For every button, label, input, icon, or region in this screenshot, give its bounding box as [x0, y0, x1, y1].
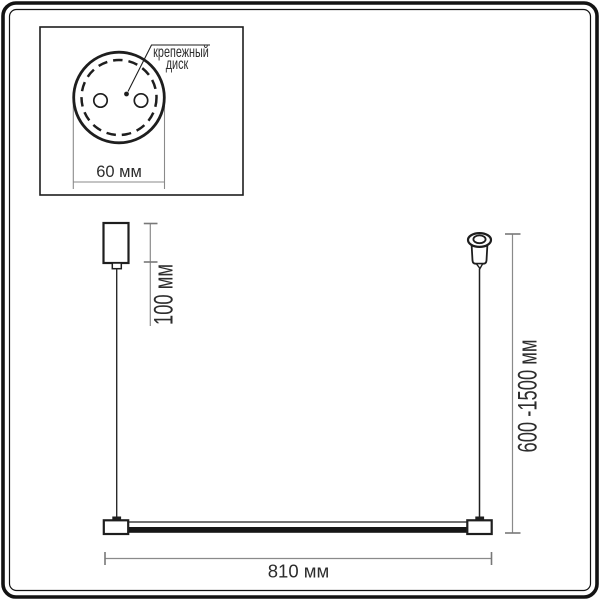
cable-grip-flange-inner	[473, 235, 485, 243]
fixture-length-label: 810 мм	[268, 561, 329, 582]
mounting-hole-right	[134, 94, 147, 107]
mounting-disc-outline	[74, 52, 165, 143]
disc-diameter-label: 60 мм	[96, 163, 142, 181]
pendant-light-dimension-diagram: крепежный диск 60 мм	[0, 0, 600, 600]
mounting-disc-inset: крепежный диск 60 мм	[40, 27, 243, 195]
bar-end-cap-left	[104, 520, 128, 534]
canopy-drop-label: 100 мм	[148, 264, 178, 325]
mounting-hole-left	[94, 94, 107, 107]
bar-end-cap-right	[467, 520, 491, 534]
canopy-box	[104, 223, 129, 263]
callout-label-line2: диск	[166, 55, 189, 72]
canopy-nub	[112, 263, 121, 269]
callout-anchor-dot	[124, 92, 129, 97]
suspension-range-label: 600 -1500 мм	[512, 340, 542, 453]
bar-diffuser-strip	[128, 527, 468, 533]
diagram-canvas: крепежный диск 60 мм	[0, 0, 600, 600]
